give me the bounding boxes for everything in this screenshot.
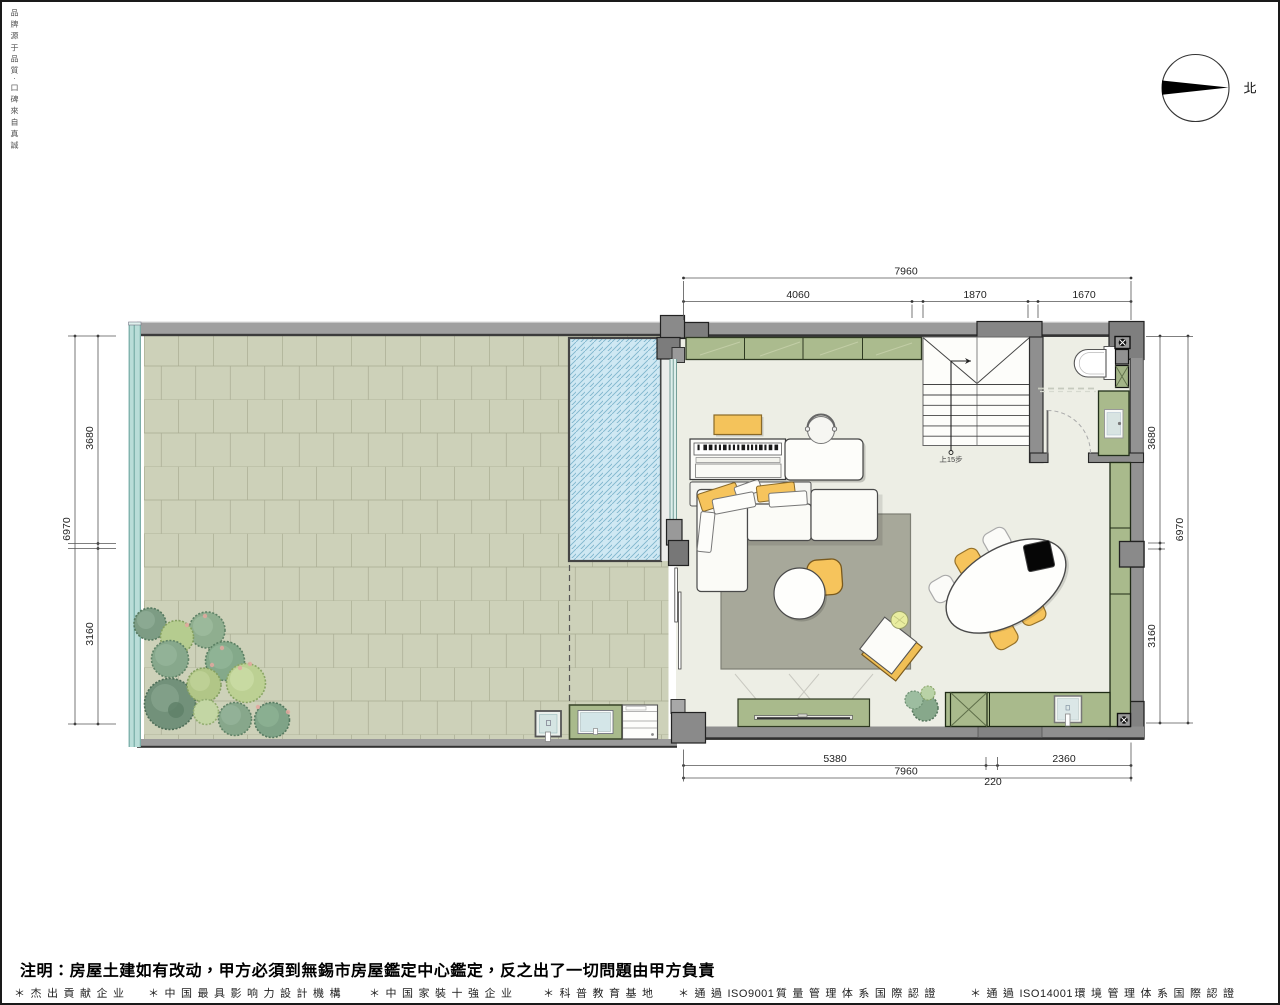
- svg-text:3160: 3160: [84, 622, 96, 646]
- svg-text:5380: 5380: [823, 753, 847, 765]
- svg-text:7960: 7960: [894, 266, 918, 278]
- svg-text:上15步: 上15步: [939, 455, 963, 464]
- svg-text:3680: 3680: [84, 426, 96, 450]
- svg-text:6970: 6970: [1174, 518, 1186, 542]
- svg-text:220: 220: [984, 776, 1002, 788]
- svg-text:4060: 4060: [786, 289, 810, 301]
- svg-text:1670: 1670: [1072, 289, 1096, 301]
- svg-text:7960: 7960: [894, 766, 918, 778]
- svg-text:2360: 2360: [1052, 753, 1076, 765]
- svg-text:3680: 3680: [1146, 426, 1158, 450]
- svg-text:1870: 1870: [963, 289, 987, 301]
- svg-text:6970: 6970: [61, 517, 73, 541]
- svg-text:3160: 3160: [1146, 624, 1158, 648]
- svg-text:北: 北: [1244, 81, 1257, 96]
